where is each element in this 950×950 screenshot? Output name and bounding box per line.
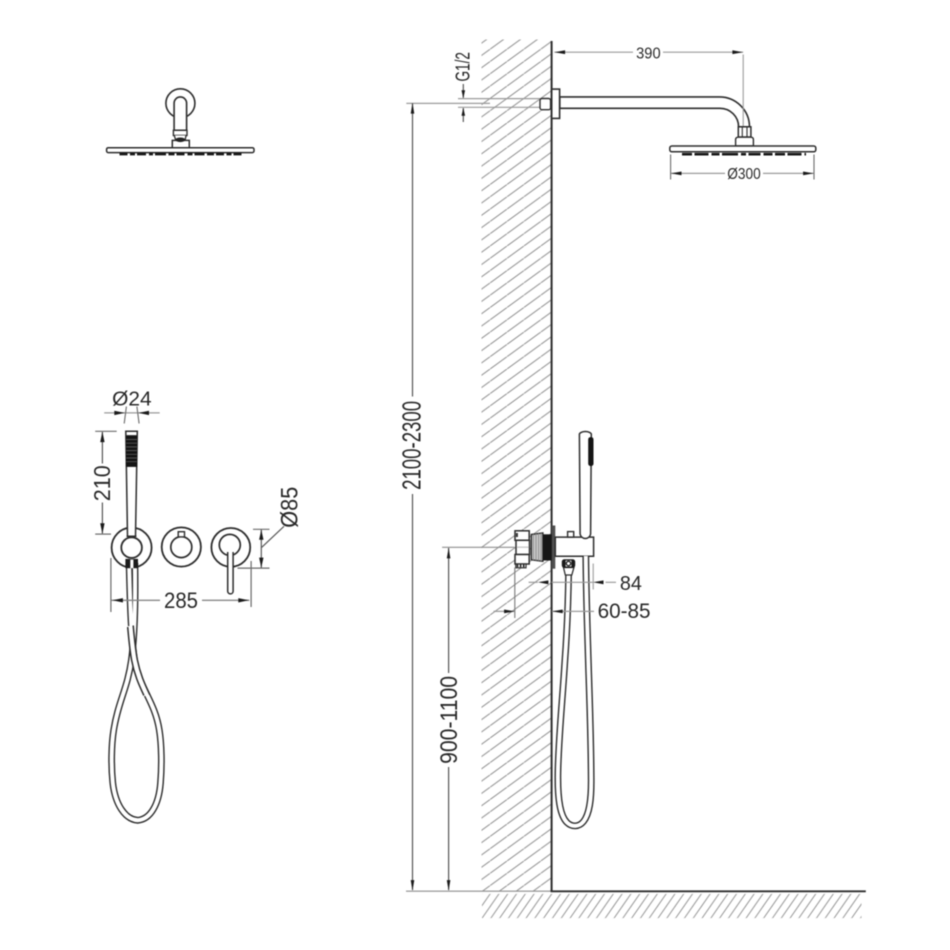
svg-text:G1/2: G1/2 <box>452 52 474 82</box>
svg-text:390: 390 <box>636 46 661 63</box>
svg-text:285: 285 <box>164 588 198 613</box>
svg-text:Ø85: Ø85 <box>277 487 304 528</box>
svg-text:2100-2300: 2100-2300 <box>397 401 427 490</box>
svg-text:60-85: 60-85 <box>598 600 651 623</box>
svg-text:84: 84 <box>620 573 642 595</box>
svg-text:Ø300: Ø300 <box>727 166 760 183</box>
svg-text:900-1100: 900-1100 <box>436 676 463 764</box>
svg-text:Ø24: Ø24 <box>112 388 152 410</box>
svg-text:210: 210 <box>89 465 115 501</box>
